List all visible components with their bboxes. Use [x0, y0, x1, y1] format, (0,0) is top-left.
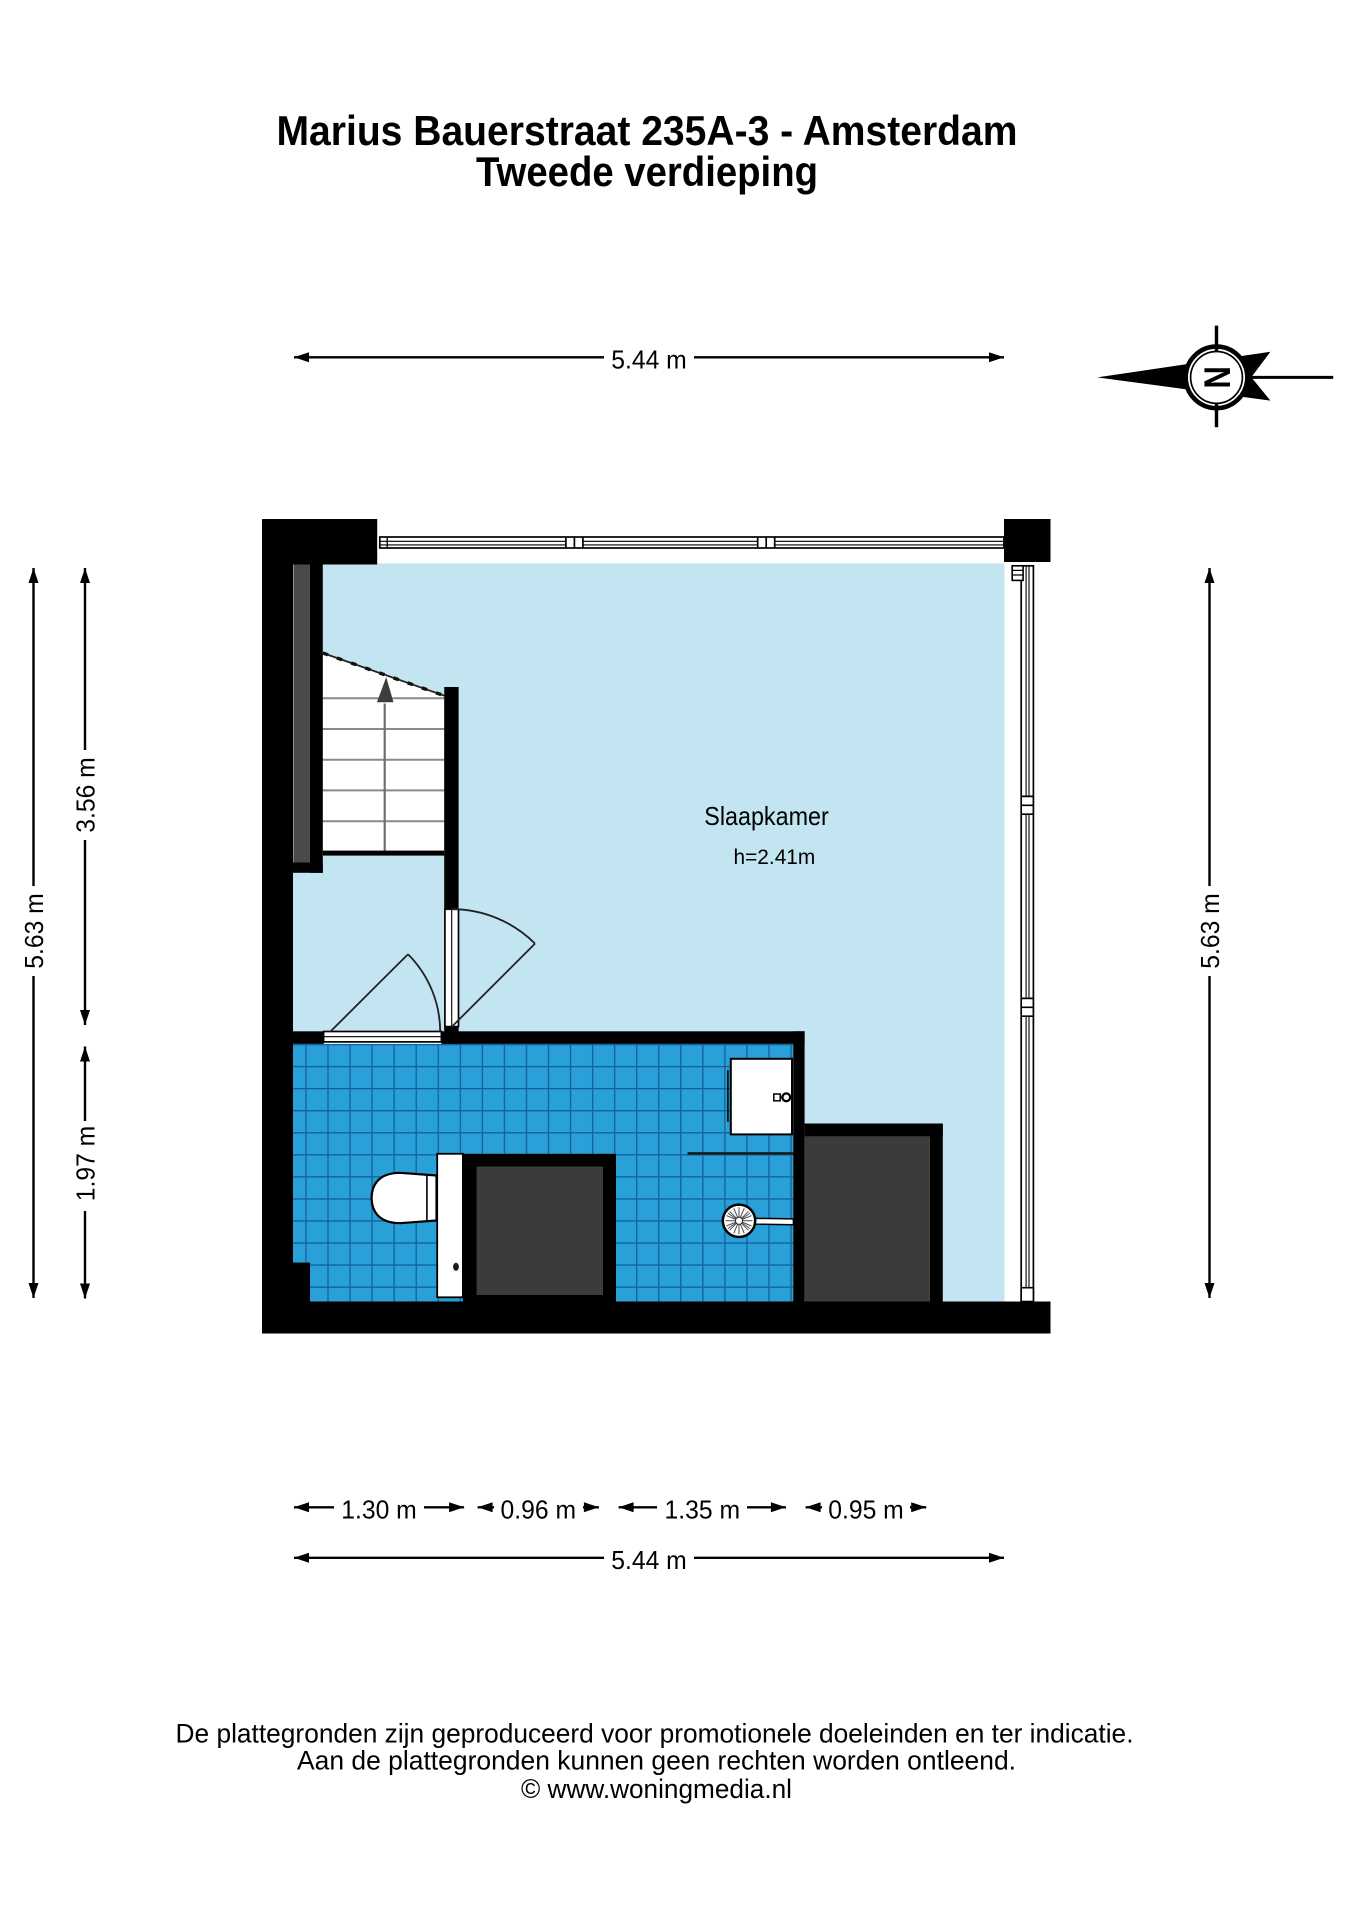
- svg-text:© www.woningmedia.nl: © www.woningmedia.nl: [521, 1774, 792, 1804]
- svg-text:Slaapkamer: Slaapkamer: [704, 801, 829, 831]
- svg-text:Tweede verdieping: Tweede verdieping: [476, 148, 818, 195]
- svg-text:5.63 m: 5.63 m: [19, 893, 49, 969]
- svg-text:5.44 m: 5.44 m: [611, 344, 687, 374]
- svg-text:5.44 m: 5.44 m: [611, 1545, 687, 1575]
- svg-text:3.56 m: 3.56 m: [70, 757, 100, 833]
- svg-text:0.96 m: 0.96 m: [501, 1494, 577, 1524]
- svg-text:De plattegronden zijn geproduc: De plattegronden zijn geproduceerd voor …: [176, 1718, 1134, 1748]
- svg-text:1.30 m: 1.30 m: [341, 1494, 417, 1524]
- svg-text:Aan de plattegronden kunnen ge: Aan de plattegronden kunnen geen rechten…: [297, 1746, 1016, 1776]
- svg-text:1.97 m: 1.97 m: [70, 1126, 100, 1202]
- svg-text:Marius Bauerstraat 235A-3 - Am: Marius Bauerstraat 235A-3 - Amsterdam: [277, 107, 1018, 154]
- svg-text:h=2.41m: h=2.41m: [734, 846, 816, 869]
- svg-text:5.63 m: 5.63 m: [1195, 893, 1225, 969]
- svg-text:1.35 m: 1.35 m: [665, 1494, 741, 1524]
- svg-text:0.95 m: 0.95 m: [828, 1494, 904, 1524]
- svg-text:N: N: [1197, 366, 1238, 389]
